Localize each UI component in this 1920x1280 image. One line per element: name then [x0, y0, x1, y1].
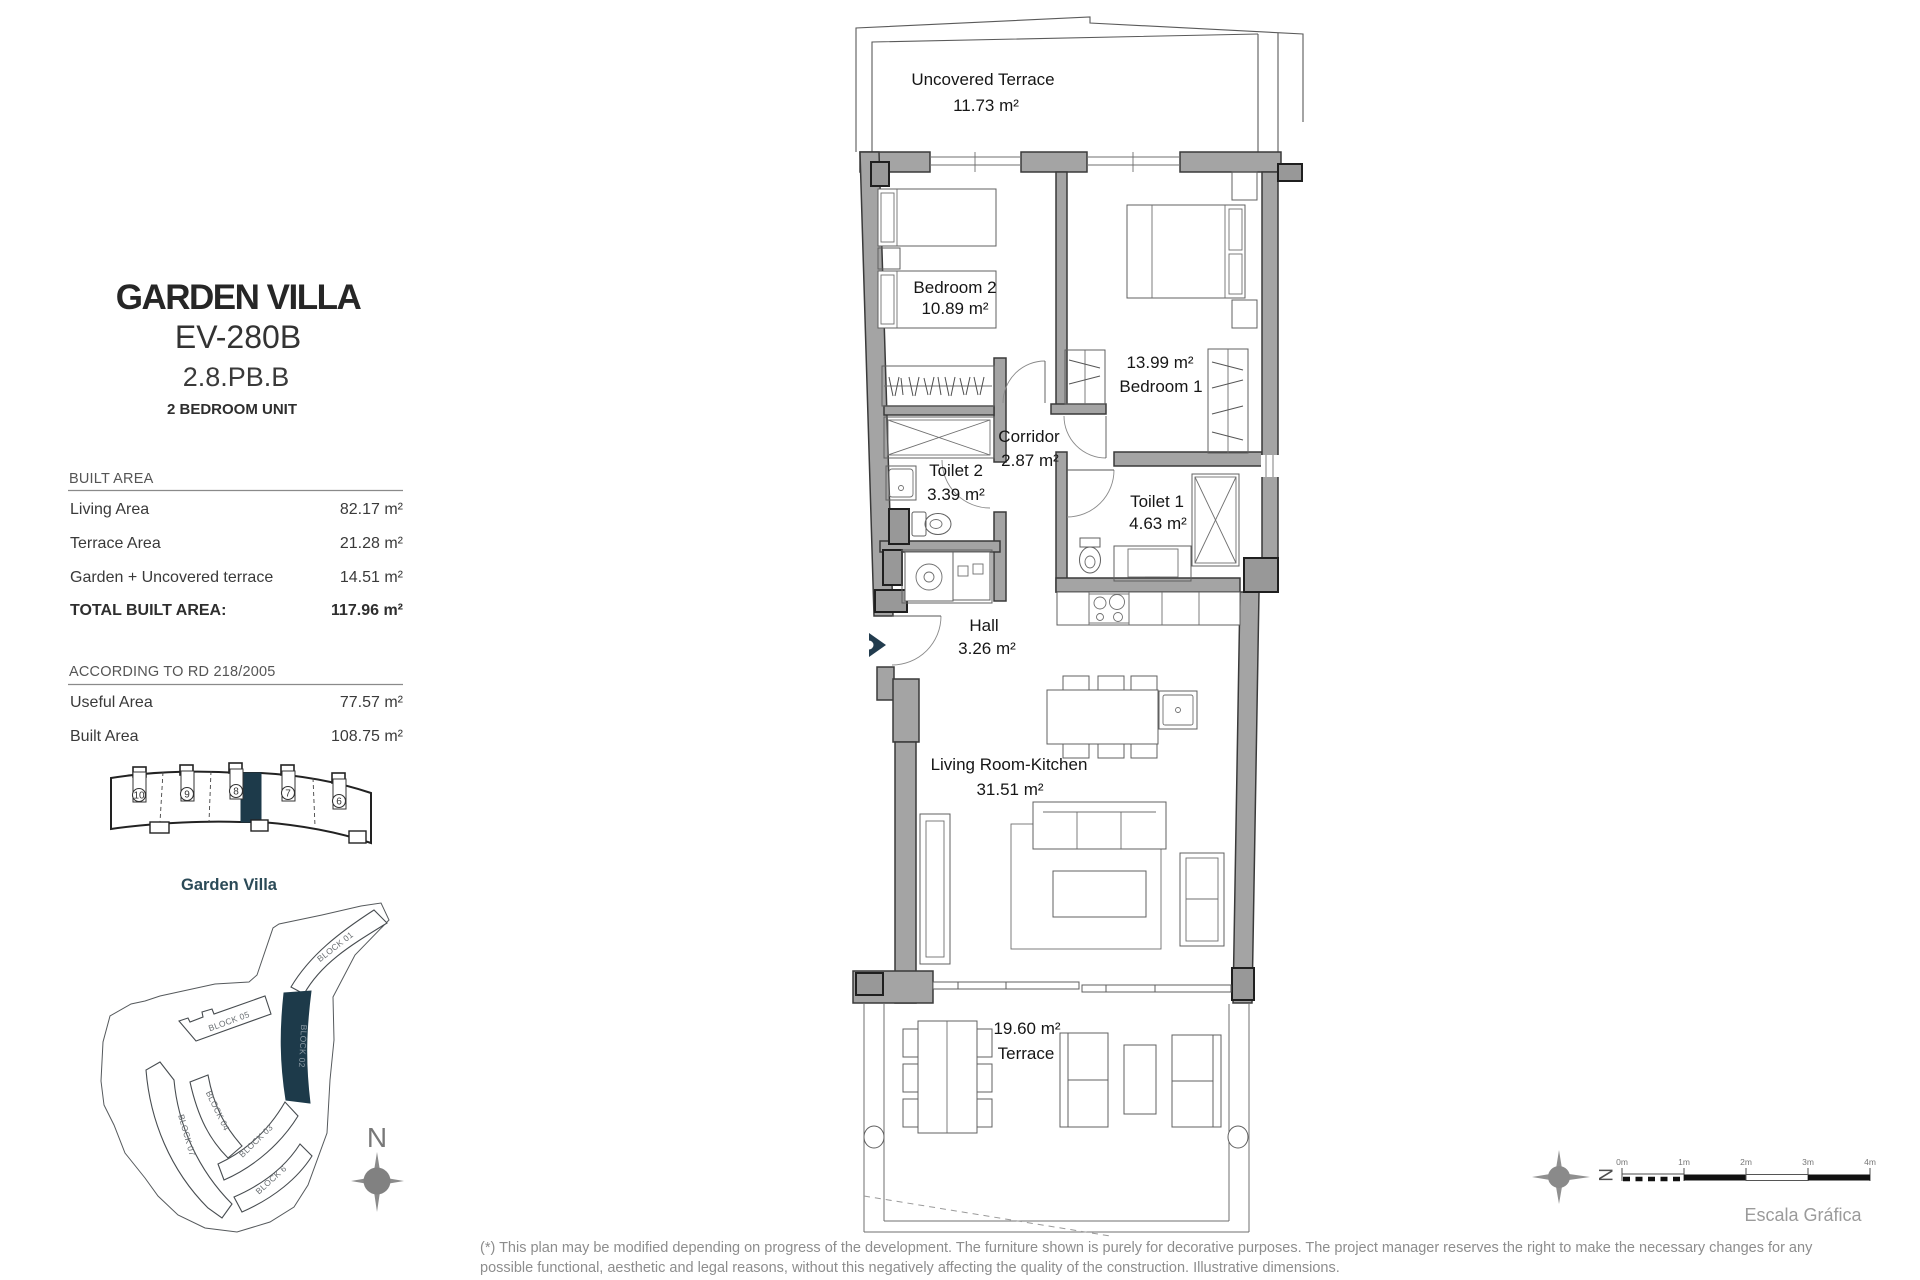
svg-text:9: 9 [184, 790, 190, 801]
svg-text:77.57 m²: 77.57 m² [340, 694, 404, 711]
svg-text:(*) This plan may be modified: (*) This plan may be modified depending … [480, 1240, 1813, 1256]
svg-text:Bedroom 2: Bedroom 2 [913, 278, 996, 297]
svg-text:6: 6 [336, 797, 342, 808]
svg-text:N: N [367, 1122, 387, 1153]
svg-text:0m: 0m [1616, 1157, 1628, 1167]
svg-text:N: N [1594, 1168, 1615, 1182]
svg-text:Toilet 1: Toilet 1 [1130, 492, 1184, 511]
svg-text:2.87 m²: 2.87 m² [1001, 451, 1059, 470]
svg-text:1m: 1m [1678, 1157, 1690, 1167]
svg-text:2m: 2m [1740, 1157, 1752, 1167]
svg-text:BUILT AREA: BUILT AREA [69, 471, 154, 487]
svg-text:Toilet 2: Toilet 2 [929, 461, 983, 480]
svg-text:Corridor: Corridor [998, 427, 1060, 446]
svg-text:31.51 m²: 31.51 m² [976, 780, 1043, 799]
svg-text:11.73 m²: 11.73 m² [953, 96, 1019, 115]
svg-text:Garden Villa: Garden Villa [181, 876, 278, 894]
svg-text:Garden + Uncovered terrace: Garden + Uncovered terrace [70, 569, 273, 586]
svg-text:Useful Area: Useful Area [70, 694, 153, 711]
svg-text:TOTAL BUILT AREA:: TOTAL BUILT AREA: [70, 602, 226, 619]
svg-text:7: 7 [285, 789, 291, 800]
svg-text:21.28 m²: 21.28 m² [340, 535, 404, 552]
svg-text:GARDEN VILLA: GARDEN VILLA [116, 278, 362, 317]
svg-text:Hall: Hall [969, 616, 998, 635]
svg-text:108.75 m²: 108.75 m² [331, 728, 404, 745]
svg-text:10.89 m²: 10.89 m² [921, 299, 988, 318]
svg-text:2.8.PB.B: 2.8.PB.B [183, 362, 290, 392]
svg-text:3m: 3m [1802, 1157, 1814, 1167]
svg-text:Living Room-Kitchen: Living Room-Kitchen [931, 755, 1088, 774]
svg-text:82.17 m²: 82.17 m² [340, 501, 404, 518]
svg-text:EV-280B: EV-280B [175, 319, 301, 355]
svg-text:13.99 m²: 13.99 m² [1126, 353, 1193, 372]
svg-text:8: 8 [233, 787, 239, 798]
svg-text:4m: 4m [1864, 1157, 1876, 1167]
svg-text:14.51 m²: 14.51 m² [340, 569, 404, 586]
svg-text:Escala Gráfica: Escala Gráfica [1744, 1205, 1862, 1225]
svg-text:4.63 m²: 4.63 m² [1129, 514, 1187, 533]
svg-text:19.60 m²: 19.60 m² [993, 1019, 1060, 1038]
svg-text:117.96 m²: 117.96 m² [331, 602, 403, 619]
svg-text:Terrace Area: Terrace Area [70, 535, 161, 552]
svg-text:Uncovered Terrace: Uncovered Terrace [911, 70, 1054, 89]
svg-text:3.39 m²: 3.39 m² [927, 485, 985, 504]
svg-text:10: 10 [133, 791, 145, 802]
svg-text:Living Area: Living Area [70, 501, 149, 518]
svg-text:Built Area: Built Area [70, 728, 139, 745]
svg-text:possible functional, aesthetic: possible functional, aesthetic and legal… [480, 1260, 1340, 1276]
svg-text:2 BEDROOM UNIT: 2 BEDROOM UNIT [167, 401, 297, 418]
svg-text:Bedroom 1: Bedroom 1 [1119, 377, 1202, 396]
svg-text:ACCORDING TO RD 218/2005: ACCORDING TO RD 218/2005 [69, 664, 276, 680]
svg-text:3.26 m²: 3.26 m² [958, 639, 1016, 658]
svg-text:Terrace: Terrace [998, 1044, 1055, 1063]
